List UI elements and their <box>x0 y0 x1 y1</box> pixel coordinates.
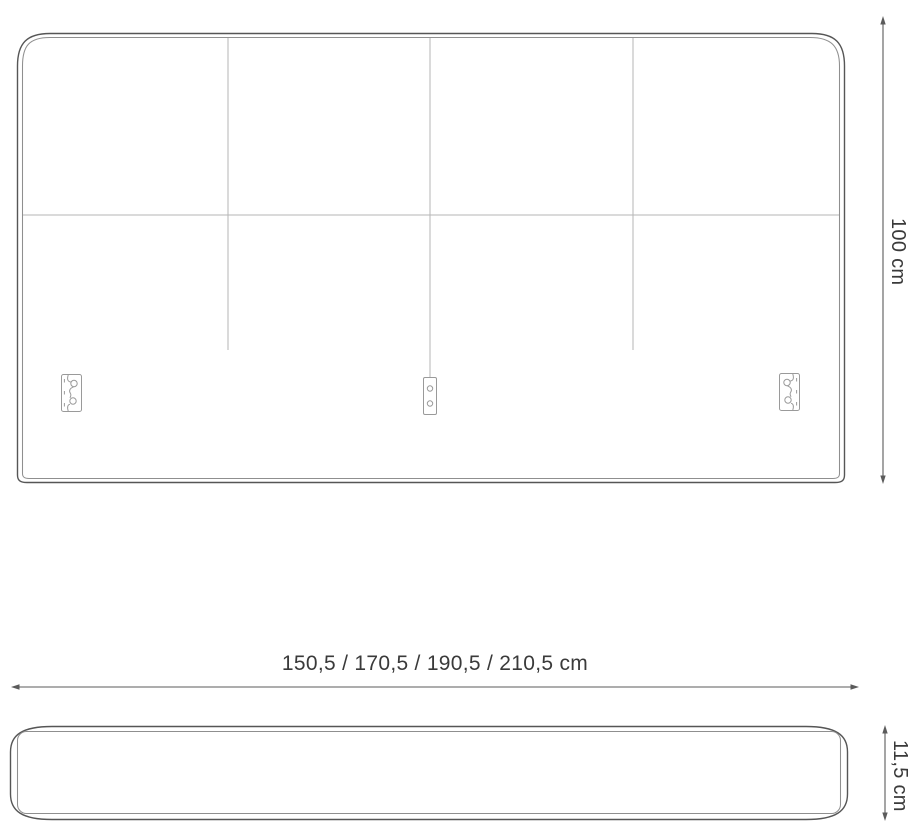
profile-inner-seam <box>18 732 841 814</box>
width-dimension-label: 150,5 / 170,5 / 190,5 / 210,5 cm <box>0 652 870 676</box>
headboard-profile-view <box>11 727 848 820</box>
height-dimension-label: 100 cm <box>886 218 909 285</box>
headboard-front-view <box>18 34 845 483</box>
width-arrow-right-icon <box>851 684 860 689</box>
profile-outer-outline <box>11 727 848 820</box>
height-dimension <box>880 16 885 484</box>
width-arrow-left-icon <box>11 684 20 689</box>
mount-bracket-right-icon <box>780 374 800 411</box>
height-arrow-down-icon <box>880 476 885 485</box>
depth-dimension <box>882 725 887 821</box>
width-dimension <box>11 684 859 689</box>
depth-dimension-label: 11,5 cm <box>888 740 911 812</box>
panel-seam-lines <box>23 38 839 377</box>
diagram-lineart <box>0 0 920 840</box>
mount-bracket-center-icon <box>424 378 437 415</box>
mount-bracket-left-icon <box>62 375 82 412</box>
diagram-canvas: 100 cm 150,5 / 170,5 / 190,5 / 210,5 cm … <box>0 0 920 840</box>
depth-arrow-up-icon <box>882 725 887 734</box>
height-arrow-up-icon <box>880 16 885 25</box>
front-outer-outline <box>18 34 845 483</box>
depth-arrow-down-icon <box>882 813 887 822</box>
